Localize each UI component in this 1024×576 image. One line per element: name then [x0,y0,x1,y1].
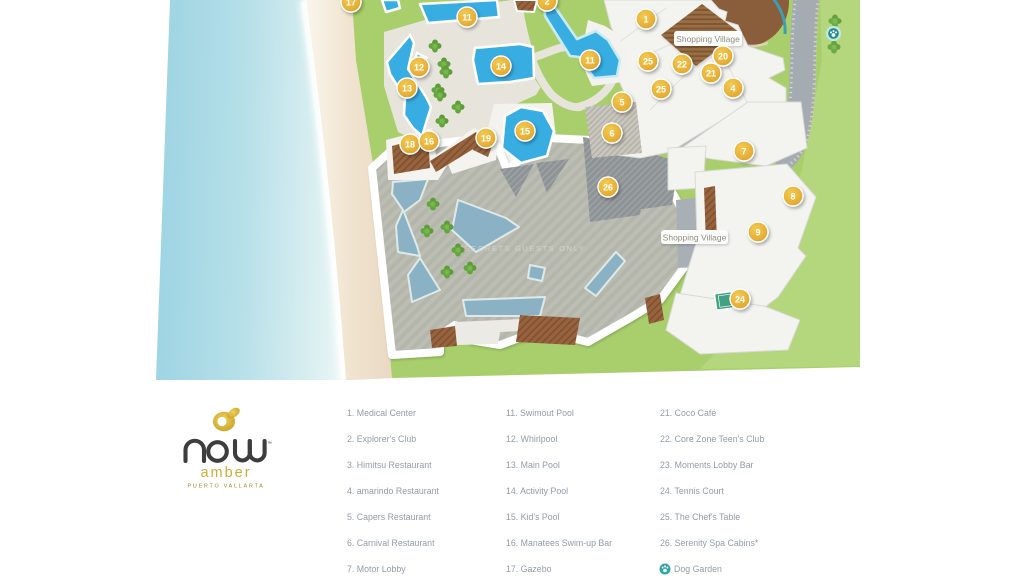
svg-text:19: 19 [481,134,491,144]
svg-text:26. Serenity Spa Cabins*: 26. Serenity Spa Cabins* [660,538,759,548]
svg-text:12. Whirlpool: 12. Whirlpool [506,434,557,444]
svg-text:21. Coco Café: 21. Coco Café [660,408,716,418]
svg-text:23. Moments Lobby Bar: 23. Moments Lobby Bar [660,460,753,470]
svg-text:24: 24 [735,295,745,305]
svg-text:6. Carnival Restaurant: 6. Carnival Restaurant [347,538,435,548]
svg-text:26: 26 [603,183,613,193]
svg-text:17. Gazebo: 17. Gazebo [506,564,552,574]
svg-text:16: 16 [424,137,434,147]
svg-text:22: 22 [677,60,687,70]
svg-text:20: 20 [718,52,728,62]
svg-text:7: 7 [741,147,746,157]
svg-text:4. amarindo Restaurant: 4. amarindo Restaurant [347,486,439,496]
svg-text:18: 18 [405,140,415,150]
svg-text:PUERTO VALLARTA: PUERTO VALLARTA [188,484,265,490]
svg-text:14. Activity Pool: 14. Activity Pool [506,486,568,496]
svg-text:7. Motor Lobby: 7. Motor Lobby [347,564,406,574]
svg-text:9: 9 [755,228,760,238]
svg-text:Shopping Village: Shopping Village [663,233,727,243]
svg-text:15. Kid's Pool: 15. Kid's Pool [506,512,560,522]
svg-text:13: 13 [402,84,412,94]
svg-text:14: 14 [496,62,506,72]
svg-text:16. Manatees Swim-up Bar: 16. Manatees Swim-up Bar [506,538,612,548]
svg-text:2: 2 [544,0,549,7]
svg-text:3. Himitsu Restaurant: 3. Himitsu Restaurant [347,460,432,470]
svg-text:15: 15 [520,127,530,137]
svg-text:™: ™ [267,441,272,447]
svg-text:25: 25 [643,57,653,67]
svg-text:2. Explorer's Club: 2. Explorer's Club [347,434,416,444]
svg-text:1: 1 [643,15,648,25]
svg-text:4: 4 [730,84,735,94]
svg-text:6: 6 [609,129,614,139]
svg-text:11. Swimout Pool: 11. Swimout Pool [506,408,574,418]
svg-text:13. Main Pool: 13. Main Pool [506,460,560,470]
svg-text:22. Core Zone Teen's Club: 22. Core Zone Teen's Club [660,434,764,444]
svg-text:Shopping Village: Shopping Village [676,34,740,44]
svg-text:SECRETS GUESTS ONLY: SECRETS GUESTS ONLY [465,244,586,253]
svg-text:25. The Chef's Table: 25. The Chef's Table [660,512,740,522]
svg-text:25: 25 [656,85,666,95]
svg-text:5: 5 [619,98,624,108]
svg-text:11: 11 [462,13,472,23]
svg-text:24. Tennis Court: 24. Tennis Court [660,486,724,496]
svg-text:Dog Garden: Dog Garden [674,564,722,574]
svg-text:17: 17 [346,0,356,8]
svg-text:1. Medical Center: 1. Medical Center [347,408,416,418]
svg-text:5. Capers Restaurant: 5. Capers Restaurant [347,512,431,522]
svg-text:12: 12 [414,63,424,73]
svg-text:8: 8 [790,192,795,202]
svg-text:amber: amber [200,465,251,481]
svg-text:11: 11 [585,56,595,66]
svg-text:21: 21 [706,69,716,79]
